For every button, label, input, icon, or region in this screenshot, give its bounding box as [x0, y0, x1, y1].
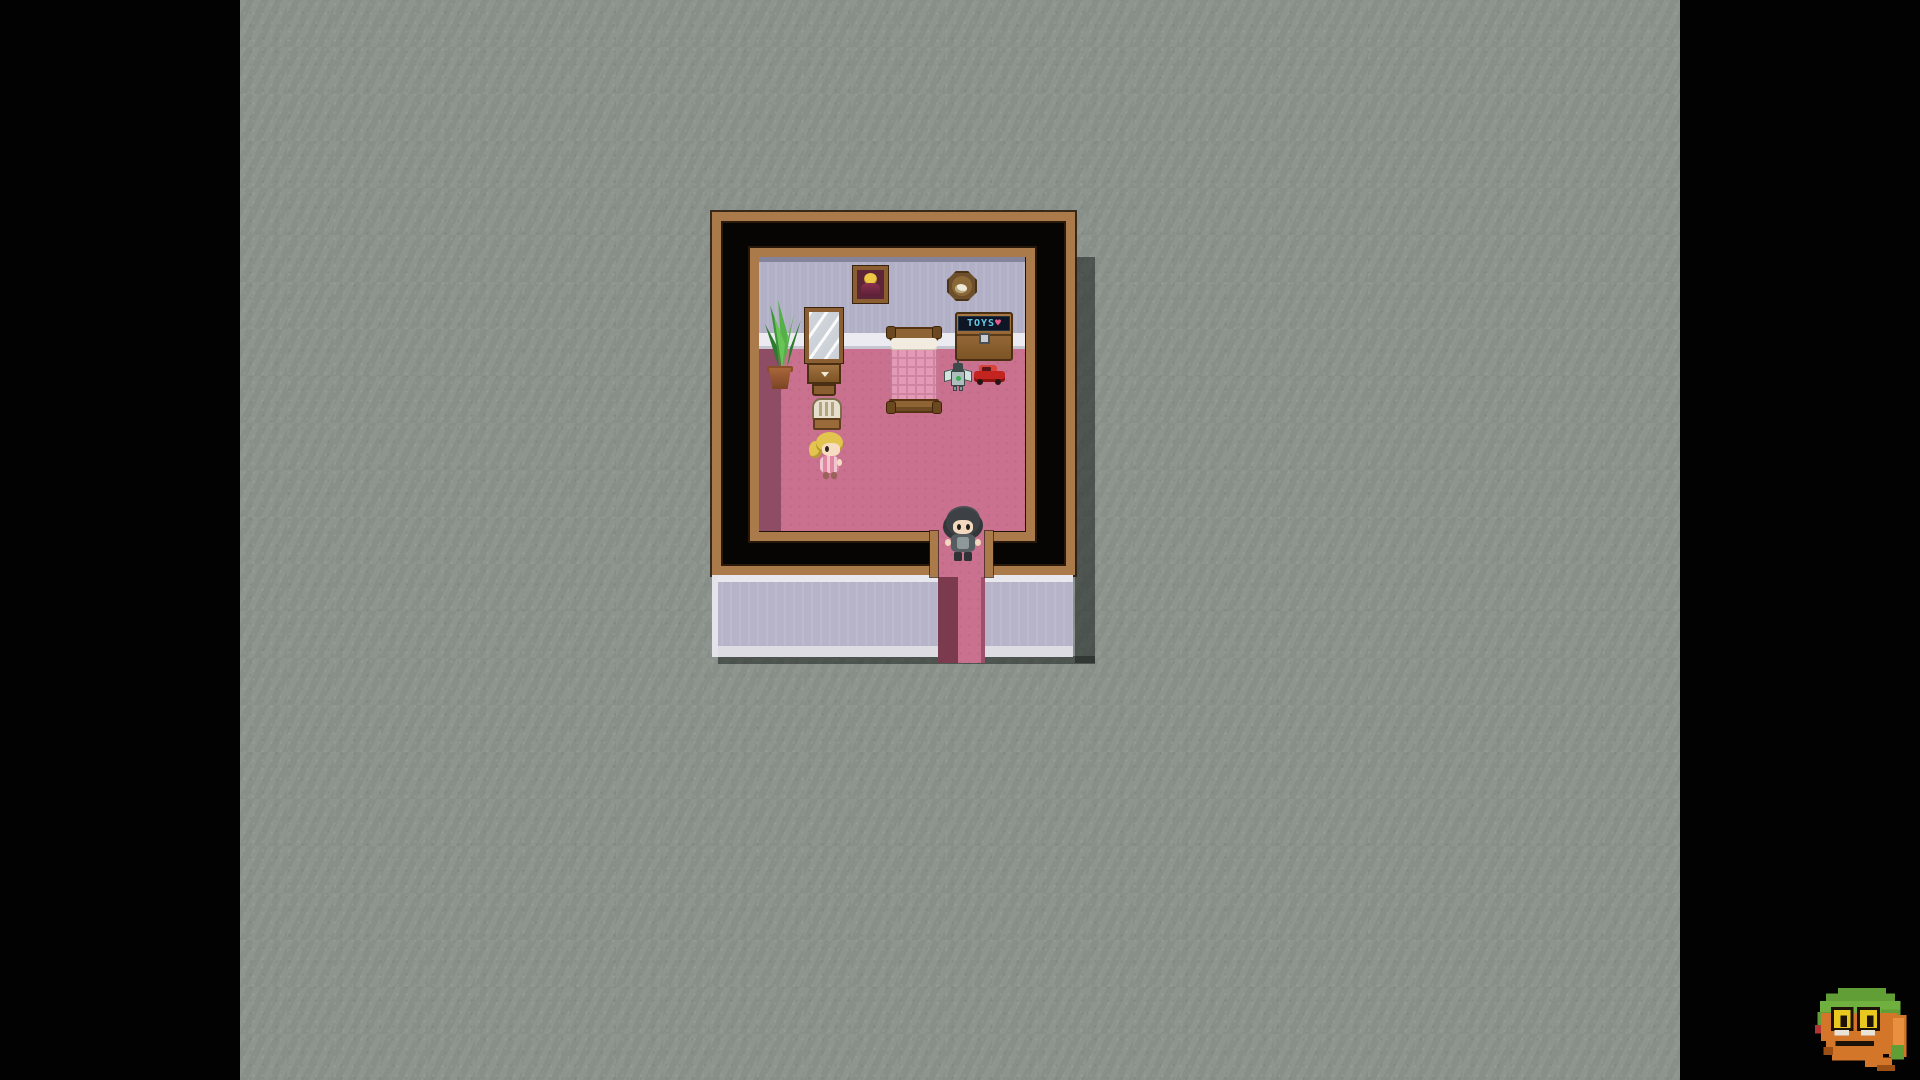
vanity-mirror — [805, 308, 843, 363]
boy-hand — [975, 539, 981, 546]
house-shadow-right — [1075, 257, 1095, 663]
chair — [812, 398, 842, 430]
chair-slat — [831, 402, 834, 416]
toy-chest-clasp — [979, 333, 990, 344]
game-stage: TOYS♥ — [0, 0, 1920, 1080]
bed-footboard — [889, 399, 939, 413]
lower-wall-panel — [712, 582, 1073, 646]
girl-character[interactable] — [810, 432, 844, 482]
boy-eye — [957, 524, 961, 530]
lower-wall-trim-bottom — [712, 646, 1073, 657]
letterbox-right-bar — [1680, 0, 1920, 1080]
mascot-toad-logo — [1814, 988, 1910, 1072]
house-shadow-bottom — [718, 656, 1095, 664]
doorway-shadow — [938, 577, 958, 663]
robot-leg — [953, 386, 957, 391]
toy-chest: TOYS♥ — [955, 312, 1013, 361]
chair-slat — [825, 402, 828, 416]
vanity-cabinet — [807, 363, 841, 384]
toy-car-wheel — [995, 379, 1001, 385]
heart-icon: ♥ — [995, 318, 1001, 329]
toad-pixel-art — [1814, 988, 1910, 1072]
boy-hand — [945, 539, 951, 546]
vanity-stool — [812, 384, 836, 396]
robot-chest-light — [956, 376, 961, 381]
bed-post — [933, 327, 941, 338]
girl-eye — [825, 446, 829, 452]
girl-foot — [831, 472, 837, 479]
toy-car-wheel — [977, 379, 983, 385]
lower-wall-trim-top — [712, 575, 1073, 582]
girl-arm — [837, 459, 842, 466]
portrait-robe — [861, 283, 880, 296]
boy-eye — [966, 524, 970, 530]
house-lower-wall — [712, 575, 1073, 657]
girl-dress — [820, 456, 839, 473]
bed-post — [933, 402, 941, 413]
plant-leaves — [763, 300, 803, 370]
bed — [888, 327, 940, 413]
boy-leg — [954, 552, 962, 561]
girl-foot — [823, 472, 829, 479]
doorway-edge — [981, 577, 985, 663]
boy-face — [953, 520, 973, 534]
door-trim-right — [985, 531, 993, 577]
toy-car — [974, 364, 1005, 386]
plant-pot — [768, 368, 792, 389]
bed-blanket — [890, 350, 938, 402]
clock-pendulum — [955, 284, 967, 293]
toy-chest-label: TOYS♥ — [959, 317, 1009, 330]
chair-slat — [819, 402, 822, 416]
boy-leg — [964, 552, 972, 561]
potted-plant — [763, 300, 803, 392]
bed-post — [887, 402, 895, 413]
wall-clock — [947, 271, 977, 301]
drawer-handle — [821, 372, 829, 377]
lower-wall-left-edge — [712, 575, 718, 657]
letterbox-left-bar — [0, 0, 240, 1080]
door-trim-left — [930, 531, 938, 577]
robot-toy — [945, 362, 971, 391]
boy-character[interactable] — [943, 508, 983, 562]
boy-shirt-panel — [957, 537, 969, 549]
wall-portrait — [853, 266, 888, 303]
robot-leg — [959, 386, 963, 391]
room-wall-cornice — [759, 257, 1025, 262]
chair-seat — [813, 418, 841, 430]
bed-post — [887, 327, 895, 338]
